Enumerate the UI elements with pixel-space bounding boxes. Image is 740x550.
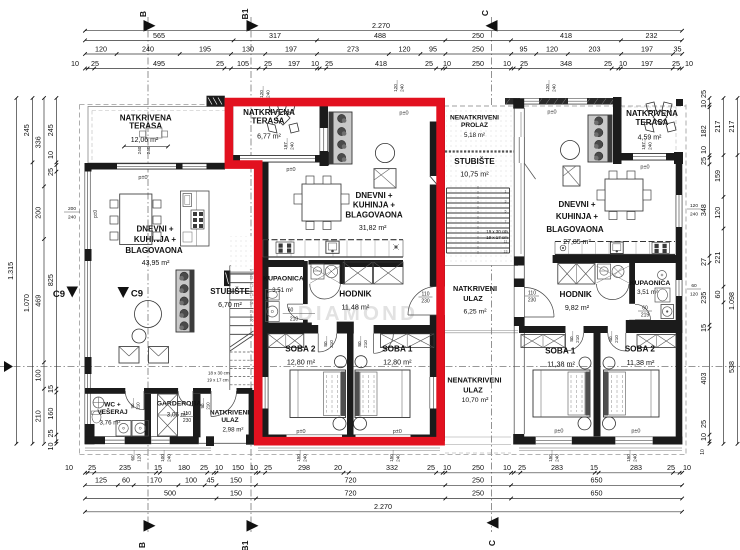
svg-text:12,80 m²: 12,80 m²	[287, 358, 316, 367]
svg-text:31,82 m²: 31,82 m²	[359, 225, 387, 232]
svg-text:217: 217	[713, 121, 722, 133]
svg-text:ULAZ: ULAZ	[221, 417, 238, 424]
svg-text:15: 15	[590, 463, 598, 472]
svg-text:60: 60	[713, 291, 722, 299]
svg-text:p±0: p±0	[286, 167, 295, 173]
svg-text:219: 219	[641, 313, 650, 319]
svg-text:3,51 m²: 3,51 m²	[272, 287, 293, 294]
svg-text:10: 10	[443, 463, 451, 472]
svg-text:469: 469	[34, 295, 43, 307]
svg-text:210: 210	[34, 410, 43, 422]
svg-text:825: 825	[46, 274, 55, 286]
svg-text:217: 217	[727, 121, 736, 133]
svg-text:NATKRIVENI: NATKRIVENI	[210, 410, 249, 417]
svg-text:120: 120	[399, 45, 411, 54]
svg-text:p±0: p±0	[393, 429, 402, 435]
svg-text:VEŠERAJ: VEŠERAJ	[97, 407, 128, 416]
svg-text:5: 5	[505, 210, 507, 214]
svg-text:240: 240	[142, 45, 154, 54]
svg-text:25: 25	[88, 463, 96, 472]
svg-text:DNEVNI +: DNEVNI +	[355, 191, 392, 200]
svg-text:STUBIŠTE: STUBIŠTE	[454, 155, 495, 166]
svg-text:720: 720	[345, 475, 357, 484]
svg-text:25: 25	[604, 59, 612, 68]
svg-text:125: 125	[95, 475, 107, 484]
svg-text:182: 182	[699, 125, 708, 137]
svg-text:10: 10	[700, 449, 706, 455]
svg-text:p±0: p±0	[547, 110, 556, 116]
svg-text:210: 210	[290, 317, 299, 323]
svg-text:6,70 m²: 6,70 m²	[218, 302, 242, 309]
svg-text:170: 170	[150, 475, 162, 484]
svg-text:p±0: p±0	[640, 165, 649, 171]
svg-text:80: 80	[569, 336, 574, 342]
svg-text:245: 245	[46, 124, 55, 136]
svg-text:250: 250	[472, 45, 484, 54]
svg-text:105: 105	[237, 59, 249, 68]
svg-text:27: 27	[699, 258, 708, 266]
svg-text:BLAGOVAONA: BLAGOVAONA	[125, 246, 182, 255]
svg-text:1.070: 1.070	[22, 294, 31, 312]
svg-text:10: 10	[65, 463, 73, 472]
svg-text:10,75 m²: 10,75 m²	[460, 170, 489, 179]
svg-text:NATKRIVENI: NATKRIVENI	[453, 284, 497, 293]
svg-text:60: 60	[122, 475, 130, 484]
svg-text:19 x 17 cm: 19 x 17 cm	[207, 378, 229, 383]
svg-text:240: 240	[552, 84, 557, 92]
svg-text:100: 100	[34, 370, 43, 382]
svg-text:1.098: 1.098	[727, 292, 736, 310]
svg-text:150: 150	[230, 489, 242, 498]
svg-text:150: 150	[232, 463, 244, 472]
svg-text:197: 197	[285, 45, 297, 54]
svg-text:TERASA: TERASA	[252, 116, 285, 125]
svg-text:210: 210	[575, 335, 580, 343]
svg-text:488: 488	[374, 31, 386, 40]
svg-text:3: 3	[505, 200, 507, 204]
svg-text:240: 240	[303, 454, 308, 462]
svg-text:p±0: p±0	[399, 111, 408, 117]
svg-text:150: 150	[548, 454, 553, 462]
svg-text:240: 240	[690, 212, 698, 218]
svg-text:120: 120	[713, 207, 722, 219]
svg-text:500: 500	[164, 489, 176, 498]
svg-text:232: 232	[646, 31, 658, 40]
svg-text:45: 45	[207, 475, 215, 484]
svg-text:11: 11	[504, 240, 508, 244]
svg-text:PROLAZ: PROLAZ	[461, 122, 488, 129]
svg-text:10: 10	[311, 59, 319, 68]
svg-text:BLAGOVAONA: BLAGOVAONA	[345, 211, 402, 220]
svg-text:130: 130	[242, 45, 254, 54]
svg-text:11: 11	[250, 276, 254, 280]
svg-text:240: 240	[290, 142, 295, 150]
svg-text:495: 495	[153, 59, 165, 68]
svg-text:B: B	[138, 11, 148, 17]
svg-text:210: 210	[136, 402, 141, 410]
svg-text:250: 250	[472, 463, 484, 472]
svg-text:150: 150	[626, 454, 631, 462]
svg-text:720: 720	[345, 489, 357, 498]
svg-text:180: 180	[178, 463, 190, 472]
svg-text:16: 16	[250, 319, 254, 323]
svg-text:348: 348	[560, 59, 572, 68]
svg-text:80: 80	[323, 341, 328, 347]
svg-text:WC +: WC +	[104, 402, 121, 409]
svg-text:SOBA 1: SOBA 1	[382, 345, 413, 354]
svg-text:KUHINJA +: KUHINJA +	[353, 200, 395, 209]
svg-text:2,98 m²: 2,98 m²	[223, 427, 244, 434]
svg-text:120: 120	[690, 292, 698, 298]
svg-text:18 x 30 cm: 18 x 30 cm	[208, 371, 230, 376]
svg-text:25: 25	[200, 463, 208, 472]
svg-text:13: 13	[504, 250, 508, 254]
svg-text:KUHINJA +: KUHINJA +	[556, 212, 598, 221]
svg-text:150: 150	[230, 475, 242, 484]
svg-text:650: 650	[591, 489, 603, 498]
svg-text:25: 25	[699, 90, 708, 98]
svg-text:230: 230	[421, 299, 430, 305]
svg-text:HODNIK: HODNIK	[339, 290, 371, 299]
svg-text:10: 10	[443, 59, 451, 68]
svg-text:160: 160	[46, 408, 55, 420]
svg-text:10: 10	[215, 463, 223, 472]
svg-text:SOBA 2: SOBA 2	[625, 344, 656, 353]
svg-text:10: 10	[503, 59, 511, 68]
svg-text:80: 80	[357, 341, 362, 347]
svg-text:25: 25	[518, 463, 526, 472]
svg-text:240: 240	[167, 454, 172, 462]
svg-text:235: 235	[119, 463, 131, 472]
svg-text:p±0: p±0	[93, 210, 99, 219]
svg-text:120: 120	[137, 454, 142, 462]
svg-text:197: 197	[641, 45, 653, 54]
svg-text:538: 538	[727, 361, 736, 373]
svg-text:230: 230	[528, 298, 537, 304]
svg-text:SOBA 2: SOBA 2	[285, 345, 316, 354]
svg-text:110: 110	[183, 411, 191, 417]
svg-text:159: 159	[713, 170, 722, 182]
svg-text:C: C	[480, 10, 490, 16]
svg-text:6,77 m²: 6,77 m²	[257, 134, 281, 141]
svg-text:240: 240	[555, 454, 560, 462]
svg-text:4,59 m²: 4,59 m²	[638, 134, 662, 141]
svg-text:14: 14	[250, 301, 254, 305]
svg-text:90: 90	[130, 403, 135, 408]
svg-text:12,80 m²: 12,80 m²	[383, 358, 412, 367]
svg-text:5,18 m²: 5,18 m²	[464, 132, 485, 139]
svg-text:10: 10	[699, 146, 708, 154]
svg-text:25: 25	[264, 59, 272, 68]
svg-text:60: 60	[691, 283, 697, 289]
svg-text:KUPAONICA: KUPAONICA	[630, 280, 671, 287]
svg-text:565: 565	[153, 31, 165, 40]
svg-text:11,48 m²: 11,48 m²	[341, 303, 369, 312]
svg-text:6,25 m²: 6,25 m²	[463, 309, 487, 316]
svg-text:1.315: 1.315	[6, 262, 15, 280]
svg-text:19 x 30 cm: 19 x 30 cm	[486, 229, 508, 234]
svg-text:25: 25	[46, 168, 55, 176]
svg-text:120: 120	[690, 203, 698, 209]
svg-text:10,70 m²: 10,70 m²	[462, 397, 490, 404]
svg-text:110: 110	[422, 292, 430, 298]
svg-text:80: 80	[608, 336, 613, 342]
svg-text:25: 25	[520, 59, 528, 68]
svg-text:C: C	[487, 540, 497, 546]
svg-text:7: 7	[505, 220, 507, 224]
svg-text:240: 240	[266, 90, 271, 98]
svg-text:DNEVNI +: DNEVNI +	[558, 200, 595, 209]
svg-text:60: 60	[288, 308, 294, 314]
svg-text:403: 403	[699, 373, 708, 385]
svg-text:195: 195	[199, 45, 211, 54]
svg-text:KUPAONICA: KUPAONICA	[263, 276, 304, 283]
svg-text:348: 348	[699, 204, 708, 216]
svg-text:10: 10	[685, 59, 693, 68]
svg-text:10: 10	[619, 59, 627, 68]
svg-text:10: 10	[683, 463, 691, 472]
svg-text:NENATKRIVENI: NENATKRIVENI	[447, 376, 501, 385]
svg-text:19 x 17 cm: 19 x 17 cm	[486, 235, 508, 240]
svg-text:11,38 m²: 11,38 m²	[547, 359, 575, 368]
svg-text:ULAZ: ULAZ	[463, 385, 483, 394]
svg-text:43,95 m²: 43,95 m²	[142, 260, 170, 267]
svg-text:418: 418	[560, 31, 572, 40]
svg-text:95: 95	[520, 45, 528, 54]
svg-text:650: 650	[591, 475, 603, 484]
svg-text:197: 197	[288, 59, 300, 68]
svg-text:13: 13	[250, 293, 254, 297]
svg-text:250: 250	[472, 489, 484, 498]
svg-text:25: 25	[91, 59, 99, 68]
svg-text:240: 240	[146, 146, 151, 154]
svg-text:25: 25	[427, 463, 435, 472]
svg-text:210: 210	[614, 335, 619, 343]
svg-text:250: 250	[472, 475, 484, 484]
svg-text:25: 25	[46, 430, 55, 438]
svg-text:120: 120	[546, 45, 558, 54]
svg-text:10: 10	[71, 59, 79, 68]
svg-text:210: 210	[363, 340, 368, 348]
svg-text:273: 273	[347, 45, 359, 54]
svg-text:B1: B1	[240, 8, 250, 19]
svg-text:20: 20	[334, 463, 342, 472]
svg-text:25: 25	[216, 59, 224, 68]
svg-text:120: 120	[95, 45, 107, 54]
svg-text:336: 336	[34, 136, 43, 148]
svg-text:240: 240	[633, 454, 638, 462]
svg-text:25: 25	[264, 463, 272, 472]
svg-text:110: 110	[528, 291, 536, 297]
svg-text:60: 60	[642, 306, 648, 312]
svg-text:STUBIŠTE: STUBIŠTE	[210, 287, 250, 296]
svg-text:95: 95	[429, 45, 437, 54]
svg-text:10: 10	[699, 100, 708, 108]
svg-text:25: 25	[672, 59, 680, 68]
svg-text:C9: C9	[131, 289, 143, 300]
svg-text:10: 10	[46, 443, 55, 451]
svg-text:230: 230	[183, 418, 192, 424]
svg-text:15: 15	[46, 385, 55, 393]
svg-text:HODNIK: HODNIK	[560, 290, 592, 299]
svg-text:B1: B1	[240, 540, 250, 550]
svg-text:C9: C9	[53, 289, 65, 300]
svg-text:25: 25	[667, 463, 675, 472]
svg-text:221: 221	[713, 252, 722, 264]
svg-text:418: 418	[375, 59, 387, 68]
svg-text:35: 35	[674, 45, 682, 54]
svg-text:240: 240	[137, 146, 142, 154]
svg-text:283: 283	[551, 463, 563, 472]
svg-text:332: 332	[386, 463, 398, 472]
svg-text:90: 90	[200, 403, 205, 408]
svg-text:GARDEROBA: GARDEROBA	[157, 401, 202, 408]
svg-text:240: 240	[648, 142, 653, 150]
svg-text:210: 210	[206, 402, 211, 410]
svg-text:245: 245	[22, 124, 31, 136]
svg-text:2.270: 2.270	[374, 502, 392, 511]
svg-text:210: 210	[329, 340, 334, 348]
svg-text:12: 12	[250, 284, 254, 288]
svg-text:10: 10	[699, 433, 708, 441]
svg-text:298: 298	[298, 463, 310, 472]
svg-text:25: 25	[425, 59, 433, 68]
svg-text:15: 15	[154, 463, 162, 472]
svg-text:197: 197	[641, 142, 646, 150]
svg-text:240: 240	[396, 454, 401, 462]
svg-text:27,85 m²: 27,85 m²	[563, 239, 591, 246]
svg-text:250: 250	[472, 59, 484, 68]
svg-text:p±0: p±0	[554, 428, 563, 434]
svg-text:SOBA 1: SOBA 1	[545, 346, 576, 355]
svg-text:11,38 m²: 11,38 m²	[627, 358, 655, 367]
svg-text:240: 240	[68, 215, 76, 221]
svg-text:p±0: p±0	[296, 429, 305, 435]
svg-text:2.270: 2.270	[372, 21, 390, 30]
svg-text:10: 10	[46, 151, 55, 159]
svg-text:250: 250	[472, 31, 484, 40]
svg-text:317: 317	[269, 31, 281, 40]
svg-text:25: 25	[699, 157, 708, 165]
svg-text:197: 197	[641, 59, 653, 68]
svg-text:203: 203	[589, 45, 601, 54]
svg-text:BLAGOVAONA: BLAGOVAONA	[546, 225, 603, 234]
svg-text:p±0: p±0	[631, 428, 640, 434]
svg-text:p±0: p±0	[138, 175, 147, 181]
svg-text:ULAZ: ULAZ	[463, 294, 483, 303]
svg-text:25: 25	[325, 59, 333, 68]
svg-text:200: 200	[68, 206, 76, 212]
svg-text:100: 100	[185, 475, 197, 484]
svg-text:15: 15	[250, 310, 254, 314]
svg-text:9,82 m²: 9,82 m²	[565, 303, 590, 312]
svg-text:283: 283	[630, 463, 642, 472]
svg-text:120: 120	[545, 84, 550, 92]
svg-text:15: 15	[699, 324, 708, 332]
svg-text:1: 1	[505, 190, 507, 194]
svg-text:10: 10	[250, 463, 258, 472]
svg-text:10: 10	[503, 463, 511, 472]
svg-text:235: 235	[699, 292, 708, 304]
svg-text:200: 200	[34, 207, 43, 219]
svg-text:B: B	[137, 542, 147, 548]
svg-text:NENATKRIVENI: NENATKRIVENI	[450, 115, 499, 122]
svg-text:240: 240	[400, 84, 405, 92]
svg-text:25: 25	[699, 420, 708, 428]
